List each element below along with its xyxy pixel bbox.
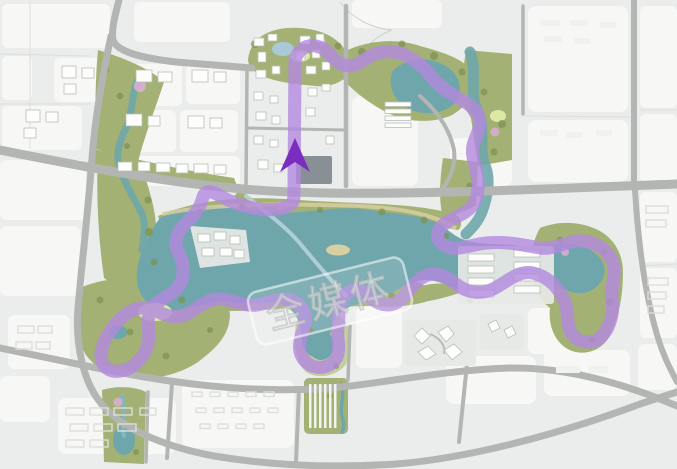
- plan-map: 全媒体: [0, 0, 677, 469]
- marina-buildings: [190, 226, 250, 268]
- campus-buildings: [404, 320, 476, 366]
- lake-island: [326, 245, 350, 256]
- map-canvas: 全媒体: [0, 0, 677, 469]
- small-campus-buildings: [480, 314, 524, 350]
